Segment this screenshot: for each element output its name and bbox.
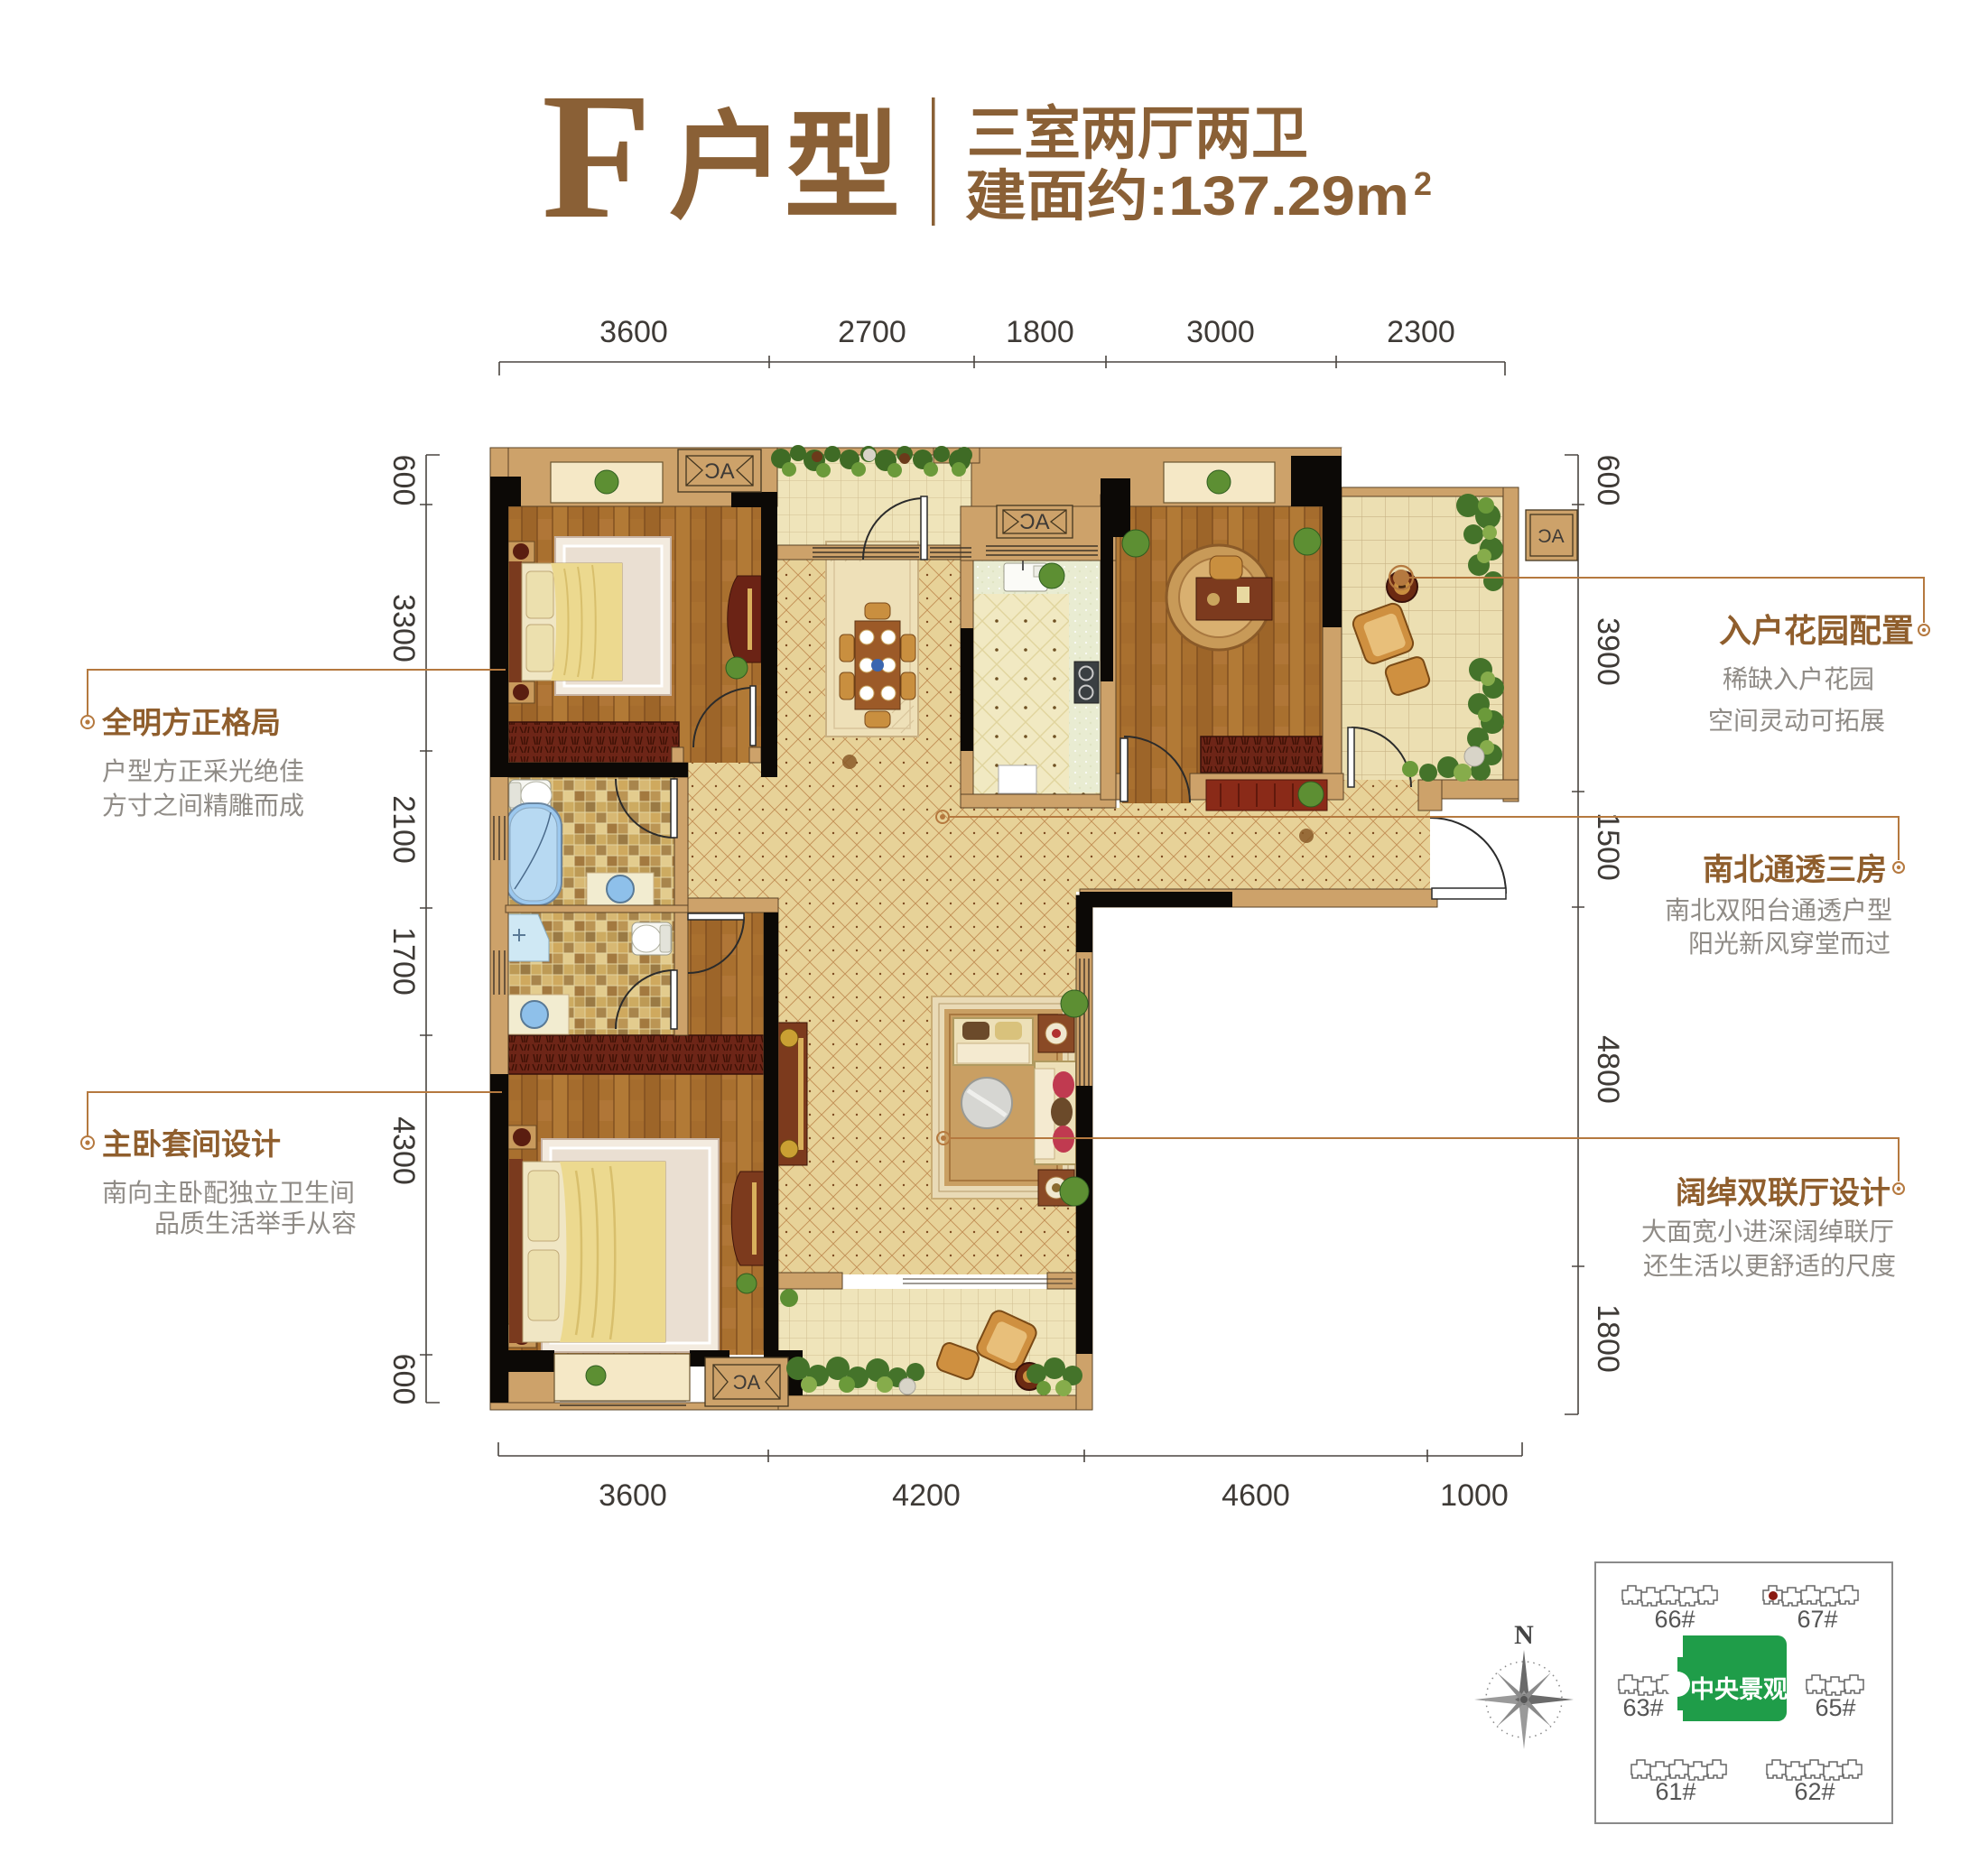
svg-text:3600: 3600 <box>599 1478 667 1513</box>
svg-text:AC: AC <box>1537 526 1564 547</box>
svg-text:4300: 4300 <box>386 1116 421 1185</box>
svg-text:空间灵动可拓展: 空间灵动可拓展 <box>1708 707 1885 735</box>
svg-text:600: 600 <box>1591 455 1625 506</box>
svg-text:1800: 1800 <box>1006 315 1074 349</box>
svg-text:稀缺入户花园: 稀缺入户花园 <box>1723 665 1874 693</box>
svg-text:2700: 2700 <box>838 315 906 349</box>
svg-text:阔绰双联厅设计: 阔绰双联厅设计 <box>1676 1176 1890 1210</box>
svg-text:2: 2 <box>1414 165 1432 202</box>
svg-text:600: 600 <box>386 1354 421 1405</box>
svg-text:1500: 1500 <box>1591 812 1625 881</box>
svg-text:63#: 63# <box>1622 1694 1663 1721</box>
svg-text:3600: 3600 <box>599 315 668 349</box>
svg-text:3300: 3300 <box>386 594 421 662</box>
svg-text:南向主卧配独立卫生间: 南向主卧配独立卫生间 <box>102 1179 355 1207</box>
svg-text:3900: 3900 <box>1591 617 1625 686</box>
svg-text:N: N <box>1514 1620 1534 1650</box>
svg-text:AC: AC <box>1019 510 1049 534</box>
svg-text:1700: 1700 <box>386 927 421 996</box>
svg-text:3000: 3000 <box>1186 315 1255 349</box>
svg-text:建面约:137.29m: 建面约:137.29m <box>965 165 1409 227</box>
svg-text:南北双阳台通透户型: 南北双阳台通透户型 <box>1665 896 1892 924</box>
svg-text:户型: 户型 <box>669 101 900 233</box>
svg-text:62#: 62# <box>1794 1778 1835 1805</box>
svg-text:600: 600 <box>386 455 421 506</box>
svg-text:阳光新风穿堂而过: 阳光新风穿堂而过 <box>1688 930 1890 958</box>
svg-text:2100: 2100 <box>386 795 421 864</box>
svg-text:大面宽小进深阔绰联厅: 大面宽小进深阔绰联厅 <box>1641 1218 1894 1246</box>
svg-text:主卧套间设计: 主卧套间设计 <box>102 1127 281 1161</box>
svg-text:66#: 66# <box>1654 1606 1695 1633</box>
svg-text:4600: 4600 <box>1222 1478 1290 1513</box>
svg-text:全明方正格局: 全明方正格局 <box>101 706 281 739</box>
svg-text:南北通透三房: 南北通透三房 <box>1703 853 1887 887</box>
svg-text:品质生活举手从容: 品质生活举手从容 <box>154 1209 357 1237</box>
svg-text:AC: AC <box>704 459 734 484</box>
svg-text:F: F <box>542 57 652 256</box>
svg-text:4800: 4800 <box>1591 1035 1625 1104</box>
svg-text:4200: 4200 <box>892 1478 961 1513</box>
svg-text:三室两厅两卫: 三室两厅两卫 <box>967 101 1308 166</box>
svg-text:61#: 61# <box>1655 1778 1695 1805</box>
svg-text:入户花园配置: 入户花园配置 <box>1719 612 1914 649</box>
svg-text:67#: 67# <box>1797 1606 1837 1633</box>
svg-text:2300: 2300 <box>1387 315 1455 349</box>
svg-text:还生活以更舒适的尺度: 还生活以更舒适的尺度 <box>1643 1252 1896 1280</box>
svg-text:1000: 1000 <box>1440 1478 1509 1513</box>
svg-text:65#: 65# <box>1815 1694 1855 1721</box>
svg-text:户型方正采光绝佳: 户型方正采光绝佳 <box>102 757 304 785</box>
svg-text:AC: AC <box>733 1371 761 1394</box>
svg-text:1800: 1800 <box>1591 1304 1625 1373</box>
svg-text:中央景观: 中央景观 <box>1690 1676 1788 1703</box>
svg-text:方寸之间精雕而成: 方寸之间精雕而成 <box>102 792 304 820</box>
